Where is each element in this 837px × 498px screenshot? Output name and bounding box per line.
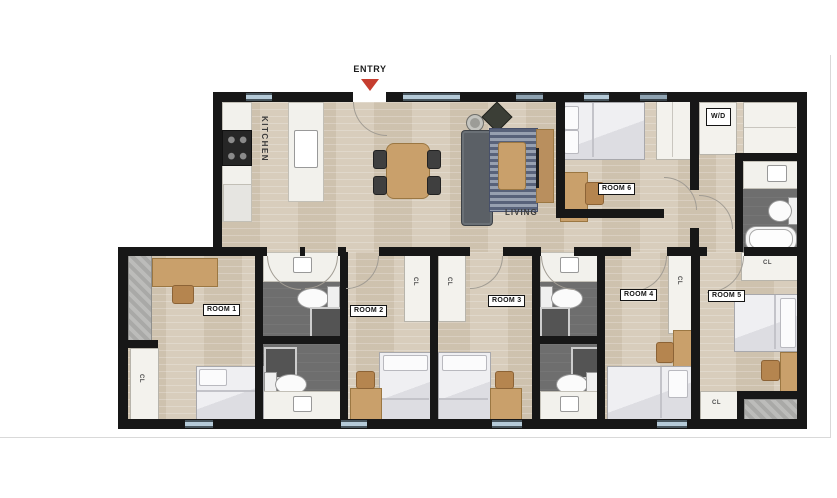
window <box>341 420 367 428</box>
bathroom-sink <box>560 396 579 412</box>
window <box>516 93 543 101</box>
closet-label: CL <box>446 277 452 286</box>
wall <box>691 251 700 429</box>
fridge <box>223 184 252 222</box>
dining-chair <box>373 150 387 169</box>
closet-label: CL <box>763 260 772 266</box>
living-label: LIVING <box>505 208 538 217</box>
wall <box>797 92 807 429</box>
shower <box>540 307 570 339</box>
linen-closet-shelf <box>744 127 796 128</box>
dining-table <box>386 143 430 199</box>
wall <box>213 92 353 102</box>
room1-pillow <box>199 369 227 386</box>
window <box>492 420 522 428</box>
window <box>640 93 667 101</box>
bathtub-basin <box>749 229 793 249</box>
wall <box>379 247 470 256</box>
room2-label: ROOM 2 <box>350 305 387 317</box>
shower <box>310 307 343 339</box>
wall <box>690 228 699 251</box>
entry-label: ENTRY <box>348 64 392 74</box>
window <box>403 93 460 101</box>
room6-wardrobe-divider <box>672 101 673 157</box>
wall <box>300 247 305 256</box>
tv <box>536 148 539 188</box>
wall <box>690 92 699 190</box>
room5-label: ROOM 5 <box>708 290 745 302</box>
room6-bed-fold <box>592 103 594 157</box>
room6-label: ROOM 6 <box>598 183 635 195</box>
room6-pillow <box>564 106 579 130</box>
room1-bed-fold <box>197 390 261 392</box>
closet-label: CL <box>412 277 418 286</box>
room3-pillow <box>442 355 487 371</box>
room1-label: ROOM 1 <box>203 304 240 316</box>
porch <box>744 399 799 421</box>
room6-wardrobe <box>656 100 692 160</box>
room3-closet <box>438 252 466 322</box>
room2-desk <box>350 388 382 420</box>
room4-chair <box>656 342 674 363</box>
wall <box>532 336 605 344</box>
entry-arrow-icon <box>361 79 379 91</box>
closet-label: CL <box>138 374 144 383</box>
room2-closet <box>404 252 432 322</box>
room4-label: ROOM 4 <box>620 289 657 301</box>
toilet-bowl <box>551 288 583 309</box>
wall <box>118 340 158 348</box>
laundry-label: W/D <box>706 108 731 126</box>
wall <box>735 153 743 252</box>
room6-pillow <box>564 130 579 154</box>
room2-chair <box>356 371 375 389</box>
wall <box>744 247 807 256</box>
toilet-bowl <box>768 200 792 222</box>
bathroom-sink <box>767 165 787 182</box>
frame-bottom-line <box>0 437 831 438</box>
wall <box>430 252 438 429</box>
kitchen-label: KITCHEN <box>260 116 269 162</box>
wall <box>556 100 565 212</box>
bathroom-sink <box>293 396 312 412</box>
room4-pillow <box>668 370 688 398</box>
closet-label: CL <box>712 400 721 406</box>
room3-bed-fold <box>439 398 488 400</box>
window <box>185 420 213 428</box>
closet-label: CL <box>676 276 682 285</box>
room4-bed-fold <box>660 367 662 418</box>
linen-closet <box>743 102 799 155</box>
room3-label: ROOM 3 <box>488 295 525 307</box>
window <box>584 93 609 101</box>
window <box>246 93 272 101</box>
dining-chair <box>427 150 441 169</box>
frame-right-line <box>830 55 831 437</box>
wall <box>737 391 744 429</box>
wall <box>118 247 222 256</box>
room1-chair <box>172 285 194 304</box>
floor-plan: ENTRY KITCHEN LIVING ROOM 1 ROOM 2 ROOM … <box>0 0 837 498</box>
room2-bed-fold <box>380 398 429 400</box>
coffee-table <box>498 142 526 190</box>
island-sink <box>294 130 318 168</box>
window <box>657 420 687 428</box>
toilet-bowl <box>297 288 329 309</box>
room5-closet-top <box>741 252 799 281</box>
room1-desk <box>152 258 218 287</box>
wall <box>118 419 807 429</box>
stove <box>222 130 252 166</box>
dining-chair <box>427 176 441 195</box>
room5-closet-bottom <box>700 391 739 421</box>
storage-strip <box>128 252 152 342</box>
room1-closet <box>130 348 159 421</box>
wall <box>213 92 222 256</box>
wall <box>556 209 664 218</box>
wall <box>735 153 807 161</box>
room5-pillow <box>780 298 796 348</box>
wall <box>737 391 807 399</box>
room3-chair <box>495 371 514 389</box>
dining-chair <box>373 176 387 195</box>
wall <box>667 247 707 256</box>
wall <box>118 247 128 429</box>
room5-chair <box>761 360 780 381</box>
wall <box>255 336 348 344</box>
room5-bed-fold <box>774 295 776 349</box>
room2-pillow <box>383 355 428 371</box>
room3-desk <box>490 388 522 420</box>
